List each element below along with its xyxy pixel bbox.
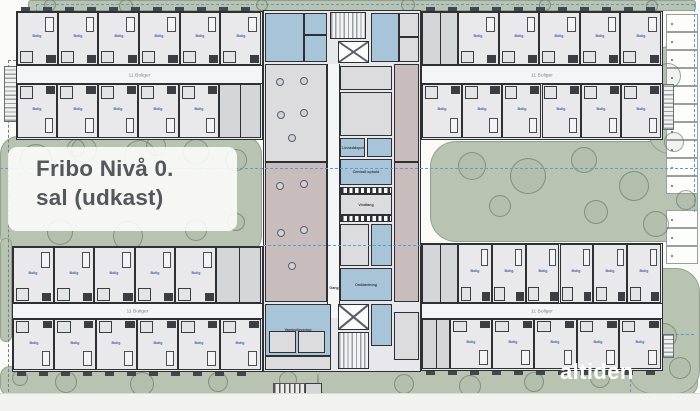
apartment-unit: Bolig xyxy=(94,247,135,303)
bathroom xyxy=(562,287,573,301)
bathroom xyxy=(57,288,70,301)
corridor: 11 Boliger xyxy=(422,303,662,319)
room-faellesareal xyxy=(265,162,327,302)
kitchen-block xyxy=(43,321,52,328)
kitchen-block xyxy=(46,55,55,63)
kitchen-block xyxy=(610,86,619,94)
unit-label: Bolig xyxy=(29,341,38,345)
kitchen-block xyxy=(84,321,93,328)
bathroom xyxy=(624,86,637,98)
bathroom xyxy=(453,321,467,333)
kitchen-block xyxy=(249,321,258,328)
tree-icon xyxy=(676,190,696,210)
bathroom xyxy=(101,86,114,98)
apartment-unit: Bolig xyxy=(458,244,492,303)
unit-label: Bolig xyxy=(474,34,483,38)
kitchen-block xyxy=(516,292,524,301)
unit-label: Bolig xyxy=(110,271,119,275)
tree-icon xyxy=(584,200,608,224)
unit-label: Bolig xyxy=(557,107,566,111)
utility-rooms xyxy=(422,12,458,65)
room-depot xyxy=(340,92,392,136)
bathroom xyxy=(16,321,29,333)
bed-icon xyxy=(489,118,497,134)
bathroom xyxy=(223,51,236,63)
bathroom xyxy=(223,321,236,333)
table-icon xyxy=(300,226,308,234)
apartment-unit: Bolig xyxy=(135,247,176,303)
tree-icon xyxy=(524,372,544,392)
unit-label: Bolig xyxy=(69,271,78,275)
kitchen-block xyxy=(86,86,95,94)
unit-label: Bolig xyxy=(514,34,523,38)
room-label: Centralt ophold xyxy=(353,170,380,174)
apartment-unit: Bolig xyxy=(54,247,95,303)
bed-icon xyxy=(648,17,656,32)
bathroom xyxy=(178,288,191,301)
unit-label: Bolig xyxy=(636,34,645,38)
bed-icon xyxy=(124,351,133,366)
apartment-unit: Bolig xyxy=(180,12,221,65)
bathroom xyxy=(20,51,33,63)
unit-label: Bolig xyxy=(470,269,479,273)
bed-icon xyxy=(41,252,49,268)
unit-label: Bolig xyxy=(504,269,513,273)
room-linneddepot: Linneddepot xyxy=(340,138,365,157)
table-icon xyxy=(277,229,285,237)
unit-label: Bolig xyxy=(593,340,602,344)
tree-icon xyxy=(458,152,486,180)
bed-icon xyxy=(42,351,51,366)
table-icon xyxy=(277,111,285,119)
tree-icon xyxy=(489,195,511,217)
bed-icon xyxy=(608,17,616,32)
boundary-line xyxy=(36,4,694,5)
bed-icon xyxy=(450,118,458,134)
room-elevator-top xyxy=(338,41,369,63)
room-office-small xyxy=(304,13,327,35)
kitchen-block xyxy=(87,55,96,63)
unit-label: Bolig xyxy=(112,341,121,345)
unit-label: Bolig xyxy=(33,34,42,38)
apartment-unit: Bolig xyxy=(98,84,138,138)
unit-label: Bolig xyxy=(155,34,164,38)
kitchen-block xyxy=(83,293,92,301)
apartment-unit: Bolig xyxy=(220,12,261,65)
kitchen-block xyxy=(205,293,214,301)
bathroom xyxy=(60,86,73,98)
apartment-unit: Bolig xyxy=(58,12,99,65)
room-vindfang: Vindfang xyxy=(340,194,392,215)
green-area xyxy=(0,238,12,342)
bed-icon xyxy=(166,351,175,366)
unit-label: Bolig xyxy=(596,34,605,38)
tree-icon xyxy=(510,158,546,194)
boundary-line xyxy=(694,4,695,212)
kitchen-block xyxy=(584,292,592,301)
bed-icon xyxy=(569,118,577,134)
table-icon xyxy=(276,78,284,86)
kitchen-block xyxy=(482,292,490,301)
bed-icon xyxy=(617,249,624,266)
bed-icon xyxy=(479,350,488,364)
bathroom xyxy=(461,51,474,63)
bathroom xyxy=(596,287,607,301)
apartment-unit: Bolig xyxy=(462,84,502,138)
apartment-unit: Bolig xyxy=(17,12,58,65)
unit-label: Bolig xyxy=(437,107,446,111)
room-elevator-bottom xyxy=(338,304,369,330)
parking-stall xyxy=(666,228,698,246)
bed-icon xyxy=(481,249,488,266)
bathroom xyxy=(20,86,33,98)
utility-rooms xyxy=(422,319,450,369)
unit-label: Bolig xyxy=(538,269,547,273)
unit-label: Bolig xyxy=(477,107,486,111)
apartment-unit: Bolig xyxy=(502,84,542,138)
kitchen-block xyxy=(649,321,659,328)
external-stair xyxy=(663,334,674,358)
bathroom xyxy=(580,321,594,333)
bathroom xyxy=(425,86,438,98)
room-anteroom xyxy=(340,66,392,90)
apartment-unit: Bolig xyxy=(539,12,580,65)
title-line-1: Fribo Nivå 0. xyxy=(36,154,237,183)
unit-label: Bolig xyxy=(114,34,123,38)
apartment-unit: Bolig xyxy=(580,12,621,65)
bathroom xyxy=(99,321,112,333)
room-label: Linneddepot xyxy=(342,145,364,149)
apartment-unit: Bolig xyxy=(560,244,594,303)
kitchen-block xyxy=(164,293,173,301)
corridor: 11 Boliger xyxy=(17,65,262,84)
kitchen-block xyxy=(128,55,137,63)
room-office xyxy=(265,13,304,62)
bathroom xyxy=(61,51,74,63)
bed-icon xyxy=(529,118,537,134)
kitchen-block xyxy=(208,321,217,328)
bathroom xyxy=(183,51,196,63)
apartment-unit: Bolig xyxy=(17,84,57,138)
kitchen-block xyxy=(528,55,537,63)
tree-icon xyxy=(394,374,414,394)
room-depot-small xyxy=(367,138,392,157)
unit-label: Bolig xyxy=(195,34,204,38)
utility-rooms xyxy=(422,244,458,303)
apartment-unit: Bolig xyxy=(54,319,95,370)
tree-icon xyxy=(643,211,669,237)
table-icon xyxy=(300,77,308,85)
kitchen-block xyxy=(42,293,51,301)
unit-label: Bolig xyxy=(154,107,163,111)
elevator-x-icon xyxy=(339,305,368,329)
corridor: 11 Boliger xyxy=(422,65,662,84)
apartment-unit: Bolig xyxy=(593,244,627,303)
table-icon xyxy=(300,109,308,117)
bathroom xyxy=(537,321,551,333)
bathroom xyxy=(141,86,154,98)
bed-icon xyxy=(86,17,95,32)
unit-label: Bolig xyxy=(151,271,160,275)
room-storage xyxy=(269,331,296,353)
apartment-unit: Bolig xyxy=(620,12,661,65)
bathroom xyxy=(623,51,636,63)
bathroom xyxy=(142,51,155,63)
unit-label: Bolig xyxy=(606,269,615,273)
bathroom xyxy=(465,86,478,98)
unit-label: Bolig xyxy=(236,341,245,345)
room-common-room xyxy=(265,64,327,162)
apartment-unit: Bolig xyxy=(621,84,661,138)
kitchen-block xyxy=(250,55,259,63)
bathroom xyxy=(502,51,515,63)
apartment-unit: Bolig xyxy=(57,84,97,138)
bathroom xyxy=(622,321,636,333)
room-storage xyxy=(298,331,325,353)
table-icon xyxy=(288,262,296,270)
apartment-unit: Bolig xyxy=(450,319,492,369)
kitchen-block xyxy=(523,321,533,328)
apartment-unit: Bolig xyxy=(137,319,178,370)
kitchen-block xyxy=(125,321,134,328)
room-storage xyxy=(399,13,419,37)
unit-label: Bolig xyxy=(70,341,79,345)
wing-top-right: 11 BoligerBoligBoligBoligBoligBoligBolig… xyxy=(421,11,663,140)
unit-label: Bolig xyxy=(73,107,82,111)
unit-label: Bolig xyxy=(597,107,606,111)
tree-icon xyxy=(664,132,684,152)
room-office xyxy=(371,13,399,62)
kitchen-block xyxy=(570,86,579,94)
apartment-unit: Bolig xyxy=(96,319,137,370)
corridor-label: 11 Boliger xyxy=(69,308,206,314)
apartment-unit: Bolig xyxy=(179,84,219,138)
room-label: Omklædning xyxy=(355,282,377,286)
unit-label: Bolig xyxy=(517,107,526,111)
unit-label: Bolig xyxy=(29,271,38,275)
kitchen-block xyxy=(568,55,577,63)
bathroom xyxy=(630,287,641,301)
bathroom xyxy=(495,321,509,333)
unit-label: Bolig xyxy=(236,34,245,38)
apartment-unit: Bolig xyxy=(581,84,621,138)
apartment-unit: Bolig xyxy=(138,84,178,138)
bed-icon xyxy=(122,252,130,268)
bed-icon xyxy=(163,252,171,268)
kitchen-block xyxy=(618,292,626,301)
apartment-unit: Bolig xyxy=(499,12,540,65)
kitchen-block xyxy=(168,55,177,63)
kitchen-block xyxy=(451,86,460,94)
unit-label: Bolig xyxy=(551,340,560,344)
room-stair-bottom xyxy=(338,332,369,369)
apartment-unit: Bolig xyxy=(220,319,261,370)
bed-icon xyxy=(207,351,216,366)
kitchen-block xyxy=(208,86,217,94)
unit-label: Bolig xyxy=(153,341,162,345)
parking-stall xyxy=(666,246,698,264)
room-work-area xyxy=(394,162,419,302)
bed-icon xyxy=(486,17,494,32)
bed-icon xyxy=(521,350,530,364)
unit-label: Bolig xyxy=(191,271,200,275)
balcony-strip xyxy=(21,7,258,11)
kitchen-block xyxy=(607,321,617,328)
table-icon xyxy=(300,180,308,188)
kitchen-block xyxy=(650,55,659,63)
kitchen-block xyxy=(650,86,659,94)
unit-label: Bolig xyxy=(33,107,42,111)
apartment-unit: Bolig xyxy=(492,319,534,369)
bathroom xyxy=(16,288,29,301)
bathroom xyxy=(505,86,518,98)
bed-icon xyxy=(248,351,257,366)
title-box: Fribo Nivå 0. sal (udkast) xyxy=(8,147,237,231)
section-line xyxy=(263,245,421,246)
bathroom xyxy=(528,287,539,301)
bathroom xyxy=(57,321,70,333)
unit-label: Bolig xyxy=(194,341,203,345)
apartment-unit: Bolig xyxy=(458,12,499,65)
corridor-label: Gang xyxy=(329,285,338,289)
balcony-strip xyxy=(17,372,258,376)
unit-label: Bolig xyxy=(73,34,82,38)
unit-label: Bolig xyxy=(572,269,581,273)
wing-bottom-right: 11 BoligerBoligBoligBoligBoligBoligBolig… xyxy=(421,243,663,371)
kitchen-block xyxy=(167,86,176,94)
bathroom xyxy=(544,86,557,98)
wing-top-left: 11 BoligerBoligBoligBoligBoligBoligBolig… xyxy=(16,11,263,140)
room-stair-top xyxy=(330,12,366,39)
kitchen-block xyxy=(487,55,496,63)
room-storage xyxy=(394,312,419,360)
tree-icon xyxy=(619,171,649,201)
bed-icon xyxy=(83,351,92,366)
room-wc xyxy=(304,35,327,62)
bed-icon xyxy=(126,118,134,134)
bed-icon xyxy=(203,252,211,268)
elevator-x-icon xyxy=(339,42,368,62)
room-centralt-ophold: Centralt ophold xyxy=(340,159,392,185)
bed-icon xyxy=(650,249,657,266)
apartment-unit: Bolig xyxy=(178,319,219,370)
apartment-unit: Bolig xyxy=(542,84,582,138)
bed-icon xyxy=(45,118,53,134)
room-label: Vindfang xyxy=(358,202,373,206)
kitchen-block xyxy=(127,86,136,94)
kitchen-block xyxy=(550,292,558,301)
unit-label: Bolig xyxy=(555,34,564,38)
bathroom xyxy=(584,86,597,98)
bathroom xyxy=(494,287,505,301)
bed-icon xyxy=(515,249,522,266)
room-storage xyxy=(399,37,419,62)
room-storage xyxy=(265,356,331,370)
corridor-label: 11 Boliger xyxy=(72,72,207,78)
bed-icon xyxy=(45,17,54,32)
bed-icon xyxy=(167,17,176,32)
bathroom xyxy=(101,51,114,63)
corridor-label: 11 Boliger xyxy=(476,308,608,314)
bed-icon xyxy=(166,118,174,134)
bed-icon xyxy=(609,118,617,134)
balcony-strip xyxy=(426,7,658,11)
corridor-label: 11 Boliger xyxy=(476,72,608,78)
footer-strip xyxy=(0,393,700,411)
corridor: 11 Boliger xyxy=(13,303,262,319)
room-glass-front xyxy=(340,187,392,194)
unit-label: Bolig xyxy=(509,340,518,344)
title-line-2: sal (udkast) xyxy=(36,183,237,212)
bed-icon xyxy=(82,252,90,268)
unit-label: Bolig xyxy=(637,107,646,111)
room-glass-front xyxy=(340,215,392,222)
apartment-unit: Bolig xyxy=(492,244,526,303)
table-icon xyxy=(288,134,296,142)
kitchen-block xyxy=(609,55,618,63)
bathroom xyxy=(542,51,555,63)
bed-icon xyxy=(126,17,135,32)
table-icon xyxy=(276,182,284,190)
bathroom xyxy=(140,321,153,333)
apartment-unit: Bolig xyxy=(13,319,54,370)
kitchen-block xyxy=(565,321,575,328)
bathroom xyxy=(138,288,151,301)
apartment-unit: Bolig xyxy=(422,84,462,138)
apartment-unit: Bolig xyxy=(13,247,54,303)
tree-icon xyxy=(571,147,597,173)
kitchen-block xyxy=(480,321,490,328)
floor-plan-slide: Fribo Nivå 0. sal (udkast) altiden 11 Bo… xyxy=(0,0,700,411)
bed-icon xyxy=(549,249,556,266)
parking-stall xyxy=(666,210,698,228)
room-omklaedning: Omklædning xyxy=(340,268,392,301)
bed-icon xyxy=(206,118,214,134)
apartment-unit: Bolig xyxy=(98,12,139,65)
core-corridor: Gang xyxy=(327,64,340,318)
unit-label: Bolig xyxy=(640,269,649,273)
unit-label: Bolig xyxy=(467,340,476,344)
room-work-area xyxy=(394,64,419,162)
kitchen-block xyxy=(167,321,176,328)
wing-bottom-left: 11 BoligerBoligBoligBoligBoligBoligBolig… xyxy=(12,246,263,372)
bed-icon xyxy=(649,118,657,134)
unit-label: Bolig xyxy=(194,107,203,111)
bed-icon xyxy=(208,17,217,32)
kitchen-block xyxy=(530,86,539,94)
bathroom xyxy=(181,321,194,333)
apartment-unit: Bolig xyxy=(139,12,180,65)
bathroom xyxy=(182,86,195,98)
tree-icon xyxy=(669,357,691,379)
apartment-unit: Bolig xyxy=(627,244,661,303)
bed-icon xyxy=(248,17,257,32)
unit-label: Bolig xyxy=(635,340,644,344)
bed-icon xyxy=(583,249,590,266)
kitchen-block xyxy=(651,292,659,301)
kitchen-block xyxy=(123,293,132,301)
utility-rooms xyxy=(219,84,261,138)
kitchen-block xyxy=(209,55,218,63)
apartment-unit: Bolig xyxy=(526,244,560,303)
kitchen-block xyxy=(490,86,499,94)
bathroom xyxy=(583,51,596,63)
bathroom xyxy=(461,287,472,301)
unit-label: Bolig xyxy=(113,107,122,111)
bed-icon xyxy=(527,17,535,32)
utility-rooms xyxy=(216,247,261,303)
bed-icon xyxy=(648,350,657,364)
